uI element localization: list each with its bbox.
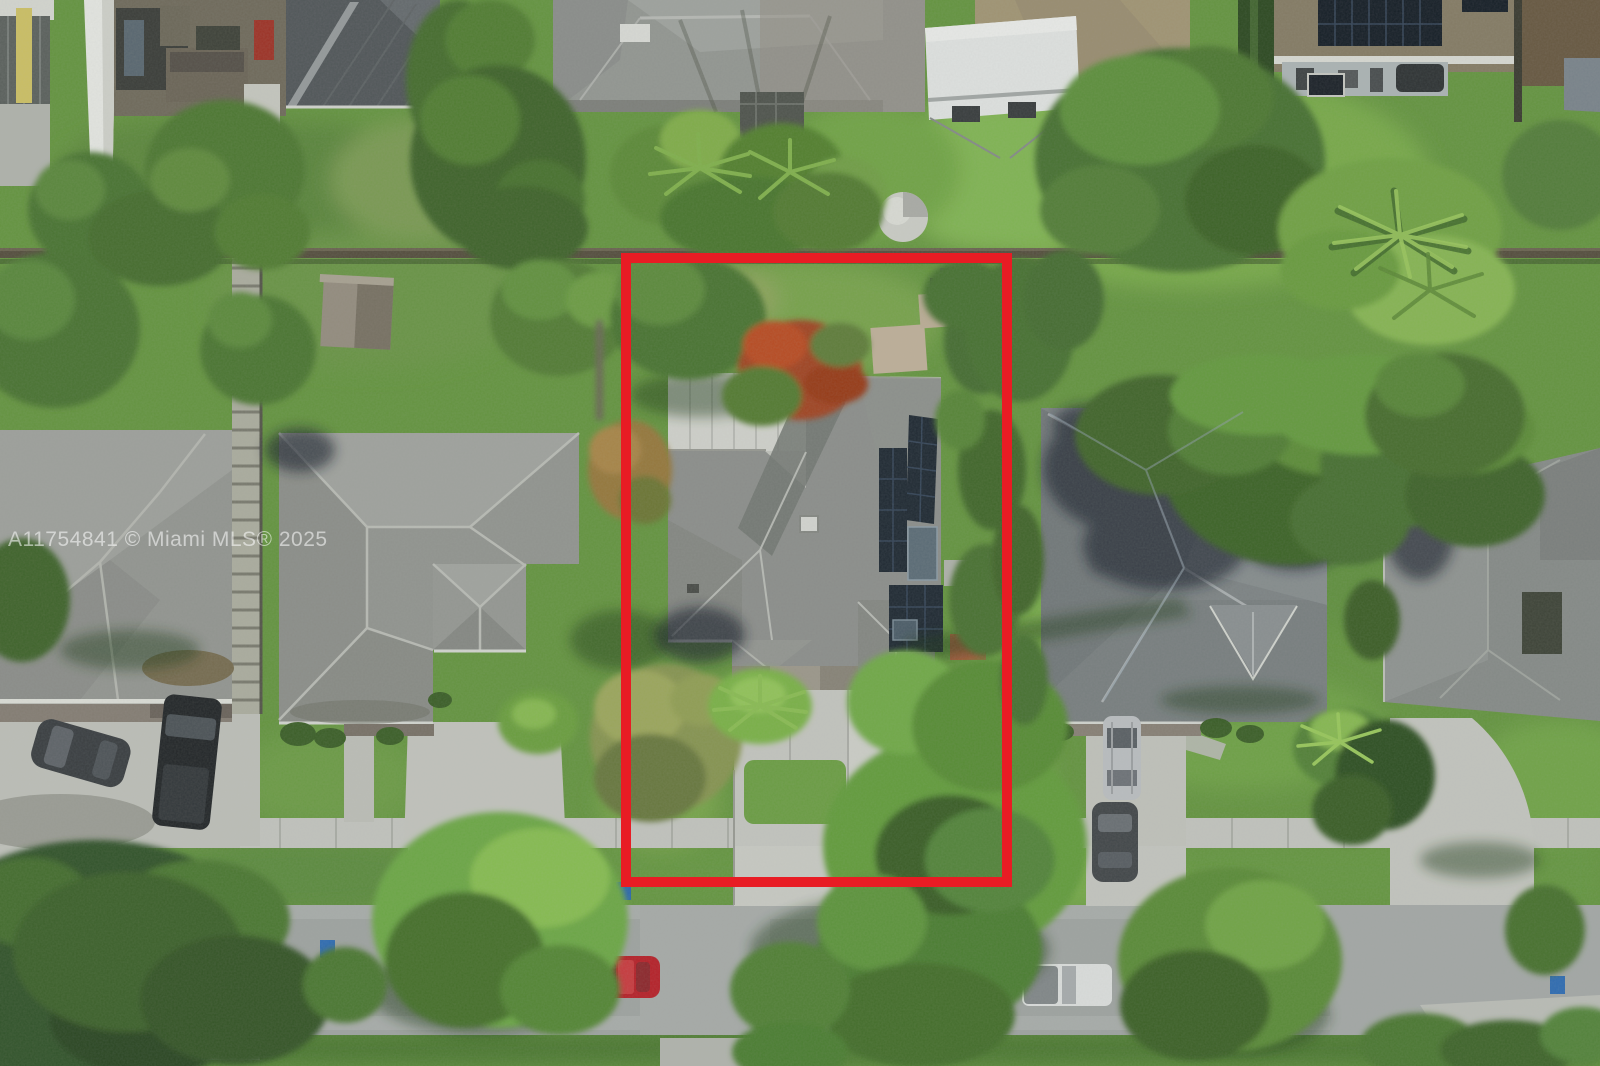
svg-text:A11754841 © Miami MLS® 2025: A11754841 © Miami MLS® 2025 — [8, 528, 328, 551]
